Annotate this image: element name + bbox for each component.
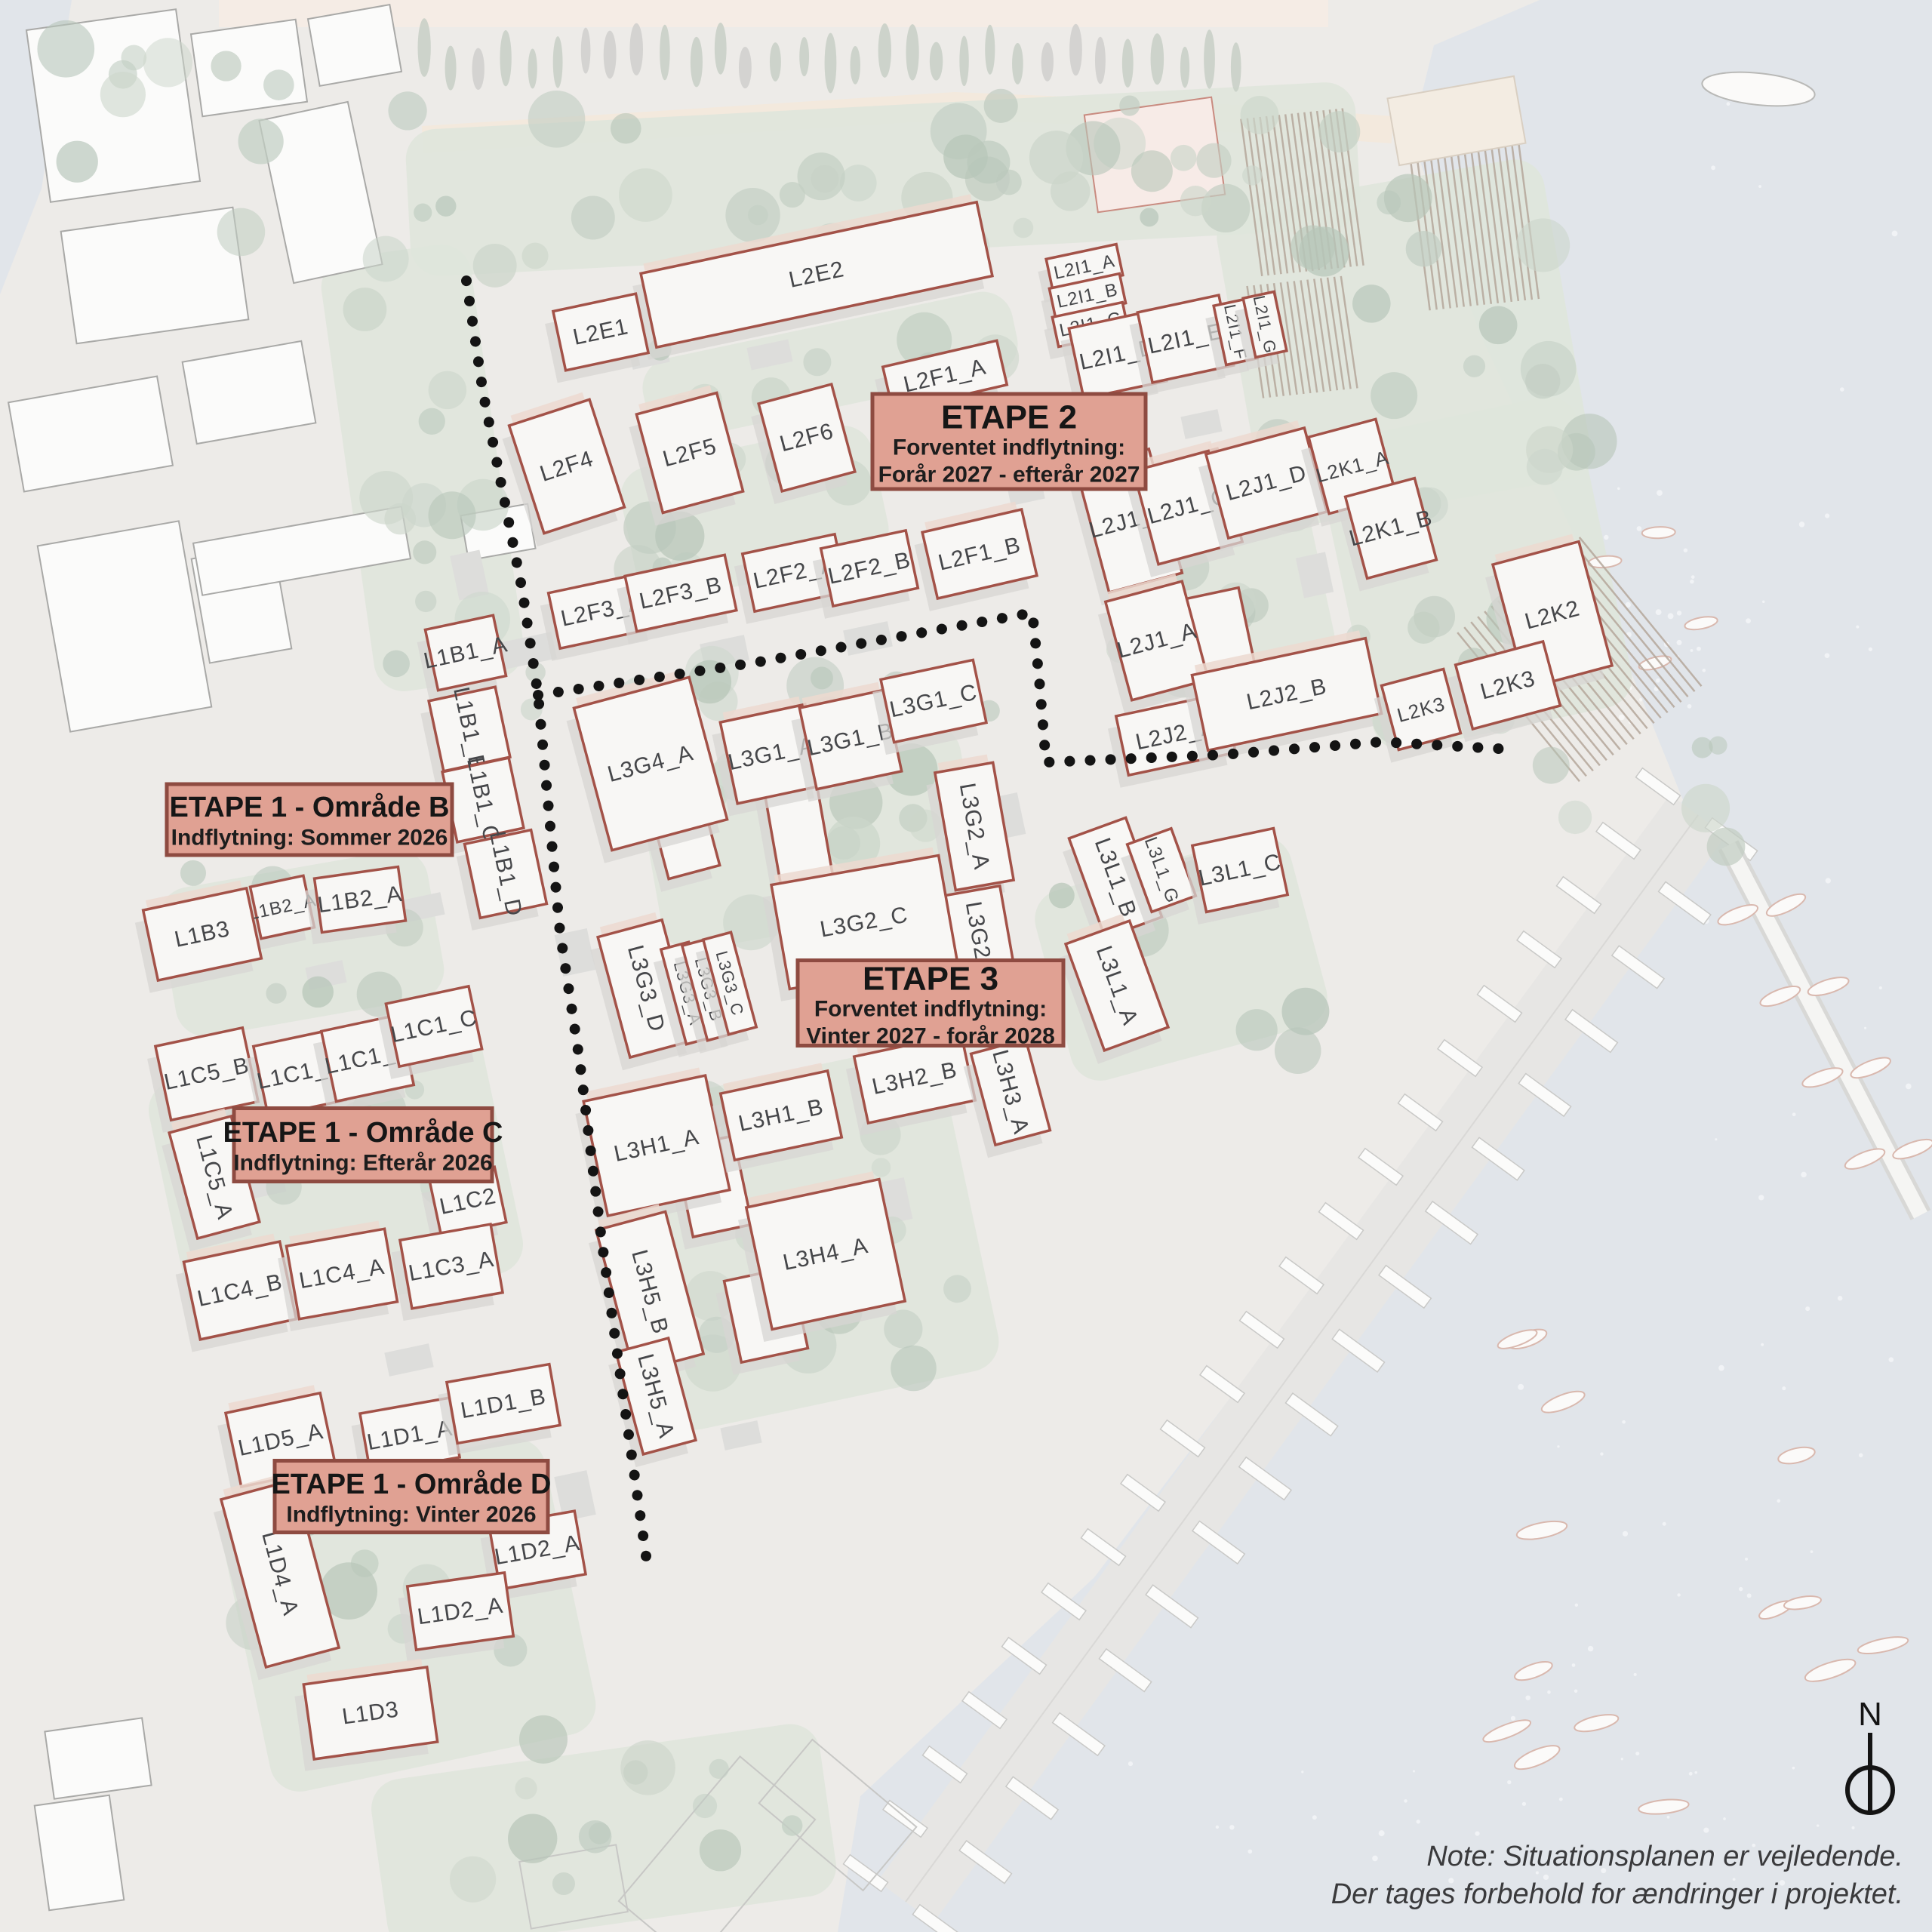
water-speckle — [1747, 1593, 1752, 1598]
water-speckle — [1677, 640, 1682, 645]
poplar-tree — [799, 37, 809, 76]
water-speckle — [1511, 1716, 1515, 1721]
water-speckle — [1746, 618, 1751, 623]
badge-etape-3: ETAPE 3Forventet indflytning:Vinter 2027… — [798, 961, 1063, 1049]
water-speckle — [1507, 1780, 1511, 1784]
water-speckle — [1635, 1752, 1639, 1755]
poplar-tree — [1204, 29, 1215, 88]
tree — [528, 91, 586, 148]
water-speckle — [1639, 698, 1643, 702]
tree — [709, 1759, 728, 1779]
water-speckle — [1856, 626, 1859, 629]
water-speckle — [1657, 490, 1663, 496]
tree — [1407, 612, 1439, 644]
tree — [217, 208, 266, 257]
tree — [100, 72, 146, 117]
water-speckle — [1557, 1445, 1559, 1447]
north-label: N — [1858, 1696, 1882, 1733]
tree — [1526, 426, 1573, 473]
water-speckle — [1727, 102, 1730, 106]
water-speckle — [1575, 1604, 1578, 1607]
tree — [522, 242, 549, 269]
badge-etape-1-omraade-b: ETAPE 1 - Område BIndflytning: Sommer 20… — [167, 784, 452, 855]
tree — [435, 195, 456, 216]
water-speckle — [1128, 1761, 1133, 1766]
context-building — [308, 5, 401, 86]
poplar-tree — [878, 23, 891, 78]
tree — [419, 408, 445, 435]
tree — [473, 244, 517, 288]
poplar-tree — [1012, 43, 1023, 85]
water-speckle — [1715, 1138, 1717, 1140]
poplar-tree — [660, 25, 670, 81]
water-speckle — [1634, 1673, 1637, 1676]
badge-line: Indflytning: Efterår 2026 — [233, 1151, 492, 1176]
water-speckle — [1801, 1172, 1806, 1177]
water-speckle — [1892, 231, 1898, 237]
poplar-tree — [770, 42, 781, 82]
building-L3H4_A: L3H4_A — [734, 1171, 907, 1342]
poplar-tree — [553, 36, 563, 88]
tree — [1140, 208, 1158, 226]
water-speckle — [1379, 1830, 1385, 1836]
tree — [579, 1820, 612, 1854]
water-speckle — [1372, 1856, 1378, 1862]
poplar-tree — [1095, 37, 1106, 85]
poplar-tree — [985, 25, 995, 75]
water-speckle — [1547, 1690, 1551, 1694]
tree — [1131, 150, 1173, 192]
tree — [984, 89, 1018, 123]
water-speckle — [1622, 1420, 1626, 1424]
water-speckle — [1417, 1820, 1420, 1823]
tree — [840, 165, 877, 202]
water-speckle — [1690, 580, 1694, 584]
poplar-tree — [500, 30, 511, 86]
poplar-tree — [528, 48, 537, 88]
water-speckle — [1559, 1798, 1563, 1801]
water-speckle — [1617, 488, 1620, 490]
badge-line: ETAPE 2 — [941, 399, 1077, 436]
building-L1D2_A: L1D2_A — [397, 1573, 515, 1662]
tree — [363, 236, 409, 282]
water-speckle — [1600, 1452, 1603, 1455]
water-speckle — [1711, 165, 1715, 170]
context-building — [45, 1718, 151, 1798]
tree — [1119, 95, 1140, 115]
poplar-tree — [472, 48, 485, 90]
tree — [180, 860, 206, 886]
badge-line: Forventet indflytning: — [814, 997, 1047, 1022]
water-speckle — [1761, 1343, 1764, 1346]
tree — [1242, 165, 1262, 185]
water-speckle — [1588, 1646, 1593, 1651]
tree — [1196, 143, 1231, 178]
badge-line: Forår 2027 - efterår 2027 — [878, 463, 1140, 488]
poplar-tree — [1122, 38, 1134, 88]
poplar-tree — [1151, 33, 1164, 85]
water-speckle — [1906, 1084, 1912, 1090]
tree — [1171, 145, 1197, 171]
tree — [1281, 988, 1329, 1035]
tree — [623, 1760, 648, 1784]
water-speckle — [1572, 1663, 1576, 1667]
water-speckle — [1782, 1386, 1786, 1390]
tree — [429, 371, 467, 410]
water-speckle — [1663, 1522, 1666, 1526]
water-speckle — [1604, 535, 1608, 540]
tree — [1352, 285, 1391, 323]
building-L3H1_A: L3H1_A — [571, 1066, 732, 1228]
water-speckle — [1703, 669, 1706, 672]
context-building — [35, 1795, 125, 1911]
tree — [388, 91, 426, 130]
water-speckle — [1718, 1365, 1724, 1371]
tree — [943, 134, 988, 179]
water-speckle — [1799, 521, 1804, 527]
site-plan: L2E2L2E1L2F4L2F5L2F6L2F1_AL2F1_BL2F3_AL2… — [0, 0, 1932, 1932]
building-L1C4_A: L1C4_A — [275, 1220, 399, 1331]
tree — [872, 1158, 891, 1177]
tree — [1291, 226, 1335, 270]
tree — [383, 651, 410, 678]
water-speckle — [1840, 387, 1844, 392]
tree — [552, 1872, 575, 1895]
tree — [428, 491, 475, 539]
poplar-tree — [1041, 42, 1054, 82]
tree — [121, 45, 146, 71]
water-speckle — [1684, 548, 1687, 552]
tree — [782, 1815, 802, 1835]
water-speckle — [1525, 1695, 1531, 1700]
water-speckle — [1745, 1558, 1748, 1561]
badge-line: Forventet indflytning: — [893, 435, 1125, 460]
poplar-tree — [851, 46, 860, 85]
tree — [700, 1829, 741, 1871]
context-building — [191, 20, 307, 116]
poplar-tree — [825, 33, 837, 94]
water-speckle — [1248, 1849, 1253, 1854]
tree — [413, 540, 436, 564]
tree — [1318, 111, 1360, 152]
water-speckle — [1229, 1825, 1234, 1829]
water-speckle — [1762, 601, 1764, 603]
poplar-tree — [445, 46, 457, 91]
water-speckle — [1825, 653, 1830, 658]
poplar-tree — [581, 28, 591, 74]
note-line-2: Der tages forbehold for ændringer i proj… — [1331, 1878, 1903, 1910]
water-speckle — [1826, 878, 1831, 883]
badge-etape-2: ETAPE 2Forventet indflytning:Forår 2027 … — [872, 394, 1146, 489]
water-speckle — [1758, 185, 1761, 188]
water-speckle — [1691, 575, 1695, 579]
water-speckle — [1723, 1817, 1726, 1820]
tree — [1463, 355, 1485, 377]
tree — [693, 1794, 717, 1818]
water-speckle — [1404, 1799, 1407, 1803]
poplar-tree — [739, 47, 752, 88]
water-speckle — [1687, 704, 1692, 709]
badge-line: ETAPE 3 — [863, 961, 998, 998]
water-speckle — [1677, 1593, 1680, 1596]
water-speckle — [1677, 611, 1681, 615]
water-speckle — [1805, 1306, 1810, 1311]
tree — [1521, 341, 1577, 397]
badge-line: ETAPE 1 - Område B — [170, 792, 450, 823]
water-speckle — [1817, 1824, 1819, 1826]
tree — [891, 1346, 937, 1392]
water-speckle — [1637, 526, 1642, 531]
tree — [1180, 186, 1211, 216]
tree — [1681, 784, 1730, 832]
water-speckle — [1859, 1453, 1863, 1457]
poplar-tree — [959, 35, 968, 86]
water-speckle — [1619, 715, 1625, 721]
poplar-tree — [418, 18, 431, 77]
tree — [1236, 1009, 1278, 1051]
water-speckle — [1656, 609, 1662, 615]
water-speckle — [1522, 1802, 1526, 1806]
water-speckle — [1689, 1772, 1693, 1776]
water-speckle — [1889, 1357, 1894, 1362]
tree — [414, 204, 432, 222]
water-speckle — [1879, 986, 1882, 989]
tree — [811, 667, 833, 690]
poplar-tree — [1069, 24, 1082, 75]
water-speckle — [1312, 1815, 1317, 1820]
poplar-tree — [906, 24, 918, 80]
water-speckle — [1668, 613, 1674, 619]
tree — [238, 118, 284, 164]
water-speckle — [1475, 1831, 1479, 1835]
poplar-tree — [604, 31, 617, 79]
tree — [1013, 218, 1033, 238]
tree — [943, 1275, 971, 1303]
badge-line: Indflytning: Sommer 2026 — [171, 826, 448, 851]
tree — [211, 51, 241, 81]
water-speckle — [1518, 1384, 1524, 1390]
poplar-tree — [691, 37, 703, 87]
tree — [1371, 372, 1417, 419]
poplar-tree — [629, 23, 643, 75]
water-speckle — [1623, 1531, 1628, 1537]
tree — [780, 182, 805, 208]
water-speckle — [1792, 1112, 1796, 1116]
tree — [748, 205, 768, 226]
tree — [450, 1857, 496, 1903]
badge-etape-1-omraade-c: ETAPE 1 - Område CIndflytning: Efterår 2… — [223, 1109, 503, 1182]
water-speckle — [1703, 1828, 1709, 1833]
tree — [611, 113, 641, 144]
tree — [343, 288, 387, 331]
tree — [302, 977, 334, 1008]
water-speckle — [1656, 678, 1660, 683]
water-speckle — [1758, 1195, 1764, 1200]
badge-line: ETAPE 1 - Område C — [223, 1117, 503, 1149]
tree — [1692, 737, 1713, 758]
water-speckle — [1838, 1296, 1842, 1300]
boat — [1642, 526, 1676, 539]
building-L1B2_A: L1B2_A — [304, 867, 408, 945]
tree — [263, 69, 294, 100]
water-speckle — [1810, 1550, 1814, 1553]
tree — [884, 1309, 922, 1348]
water-speckle — [1574, 1689, 1578, 1693]
water-speckle — [1739, 1587, 1743, 1591]
poplar-tree — [930, 42, 943, 81]
tree — [1479, 306, 1518, 345]
building-L1D3: L1D3 — [292, 1658, 439, 1771]
tree — [1384, 174, 1432, 222]
tree — [519, 1715, 568, 1764]
tree — [1029, 131, 1083, 184]
tree — [57, 141, 98, 183]
water-speckle — [1216, 1826, 1219, 1829]
tree — [1533, 747, 1570, 784]
water-speckle — [1694, 1771, 1697, 1774]
tree — [1558, 801, 1592, 834]
tree — [1516, 218, 1570, 272]
water-speckle — [1864, 1027, 1866, 1029]
tree — [415, 591, 436, 612]
tree — [515, 1777, 537, 1799]
tree — [384, 503, 416, 535]
tree — [803, 348, 831, 376]
tree — [37, 20, 94, 78]
water-speckle — [1825, 513, 1829, 518]
poplar-tree — [715, 23, 727, 75]
tree — [619, 168, 672, 222]
badge-line: Indflytning: Vinter 2026 — [286, 1503, 536, 1527]
badge-etape-1-omraade-d: ETAPE 1 - Område DIndflytning: Vinter 20… — [272, 1461, 552, 1533]
badge-line: ETAPE 1 - Område D — [272, 1469, 552, 1500]
water-speckle — [1851, 1826, 1854, 1829]
water-speckle — [1413, 1770, 1415, 1772]
badge-line: Vinter 2027 - forår 2028 — [806, 1024, 1055, 1049]
note-line-1: Note: Situationsplanen er vejledende. — [1426, 1841, 1903, 1872]
tree — [266, 983, 286, 1004]
tree — [508, 1814, 557, 1863]
tree — [571, 196, 615, 240]
water-speckle — [1792, 1767, 1795, 1770]
water-speckle — [1697, 647, 1701, 651]
water-speckle — [1777, 1499, 1780, 1503]
tree — [1049, 883, 1075, 909]
water-speckle — [1690, 649, 1694, 652]
tree — [1275, 1027, 1321, 1074]
water-speckle — [1869, 648, 1872, 651]
water-speckle — [1621, 1758, 1623, 1760]
water-speckle — [1667, 1816, 1670, 1819]
tree — [1241, 96, 1279, 134]
tree — [1707, 827, 1746, 866]
poplar-tree — [1231, 42, 1241, 91]
poplar-tree — [1180, 47, 1189, 88]
water-speckle — [1301, 1770, 1303, 1773]
tree — [143, 38, 192, 87]
tree — [1406, 231, 1441, 266]
